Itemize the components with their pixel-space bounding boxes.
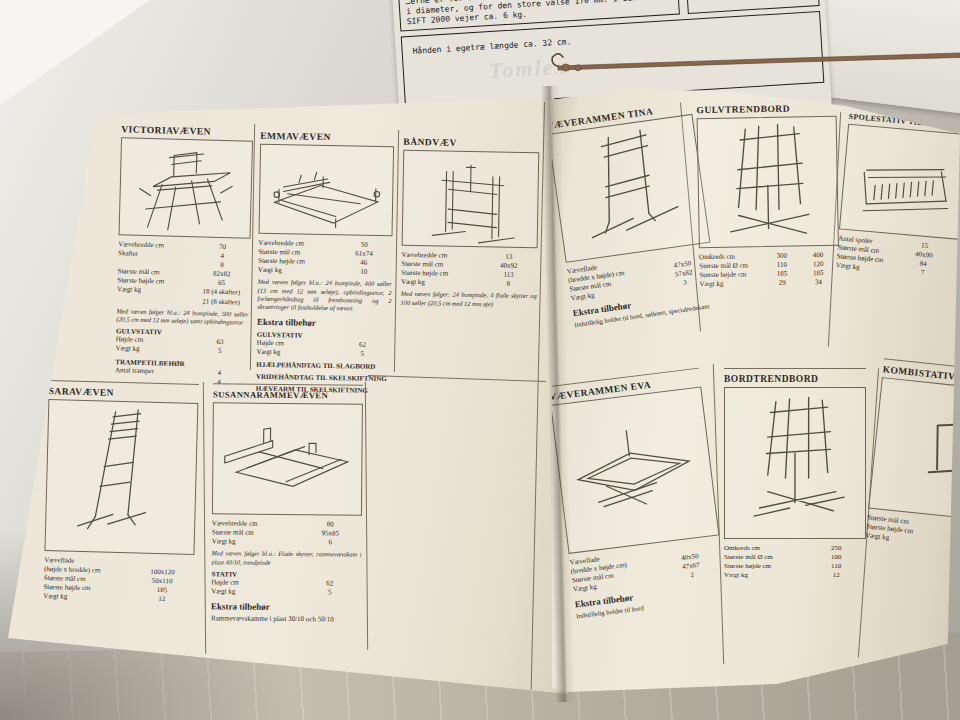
illustration-gulvtrendbord	[697, 116, 839, 248]
section-baandvaev: BÅNDVÆV Vævebredde cm13Største mål cm40x…	[401, 137, 540, 311]
catalog-left-page: VICTORIAVÆVEN Vævebredde cm70Skafter48St…	[6, 90, 572, 704]
section-title: GULVTRENDBORD	[696, 103, 836, 115]
illustration-band-loom	[402, 150, 540, 248]
ekstra-tilbehor-heading: Ekstra tilbehør	[211, 601, 361, 612]
section-gulvtrendbord: GULVTRENDBORD Omkreds cm300400Største må…	[696, 103, 839, 290]
illustration-sara-loom	[44, 399, 198, 555]
spec-value: 21 (8 skafter)	[193, 297, 249, 308]
section-saravaeven: SARAVÆVEN Væveflade(højde x bredde) cm10…	[43, 380, 199, 605]
spec-row: Vægt kg5	[256, 348, 390, 359]
divider-line	[203, 382, 206, 654]
spec-value: 12	[130, 595, 193, 606]
spec-label: Vægt kg	[401, 278, 480, 288]
spec-value: 29	[764, 279, 801, 289]
section-spolestativ: SPOLESTATIV TIL KRYDSNØGLER Antal spoler…	[835, 112, 960, 284]
divider-line	[368, 375, 546, 382]
section-susannarammevaeven: SUSANNARAMMEVÆVEN Vævebredde cm80Største…	[211, 383, 363, 627]
catalog-right-page: VÆVERAMMEN TINA Væveflade(bredde x højde…	[552, 88, 960, 696]
illustration-emma-loom	[259, 144, 395, 236]
included-items-note: Med væven følger bl.a.: 24 bompinde, 400…	[257, 278, 392, 314]
spec-value: 8	[480, 279, 537, 289]
spec-value: 5	[298, 588, 361, 598]
ekstra-tilbehor-heading: Ekstra tilbehør	[257, 317, 391, 329]
spec-label: Vægt kg	[43, 592, 130, 603]
section-title: BORDTRENDBORD	[724, 374, 866, 384]
spec-row: Største højde cm110	[724, 562, 866, 571]
spec-label: Største mål Ø cm	[724, 553, 806, 562]
spec-value	[934, 539, 960, 553]
ekstra-note: Rammevævskamme i plast 30/10 och 50/10	[211, 614, 361, 624]
spec-label: Omkreds cm	[724, 544, 806, 553]
spec-table: Højde cm62Vægt kg5	[256, 339, 390, 360]
section-victoriavaeven: VICTORIAVÆVEN Vævebredde cm70Skafter48St…	[115, 124, 254, 387]
section-vaeverammen-eva: VÆVERAMMEN EVA Væveflade(bredde x højde …	[548, 368, 728, 624]
included-items-note: Med væven følger bl.a.: 24 bompinde, 500…	[116, 307, 248, 327]
spec-value: 250	[806, 544, 866, 553]
illustration-bordtrendbord	[724, 387, 866, 539]
spec-label: Vægt kg	[256, 348, 334, 358]
spec-table: Antal spoler15Største mål cm40x90Største…	[835, 234, 948, 280]
spec-value: 6	[299, 538, 362, 548]
spec-table: Væveflade(højde x bredde) cm100x120Størs…	[43, 556, 194, 605]
spec-value: 34	[800, 278, 837, 288]
illustration-spolestativ	[839, 124, 960, 240]
spec-table: Højde cm62Vægt kg5	[211, 578, 361, 597]
spec-table: Omkreds cm250Største mål Ø cm100Største …	[724, 544, 866, 580]
spec-row: Vægt kg12	[724, 571, 866, 580]
spec-table: Omkreds cm300400Største mål Ø cm110120St…	[699, 251, 840, 290]
spec-value: 100	[806, 553, 866, 562]
illustration-kombistativ	[868, 377, 960, 521]
section-title: BÅNDVÆV	[403, 137, 539, 149]
accessory-line: VRIDEHÅNDTAG TIL SKELSKIFTNING	[256, 373, 390, 383]
section-title: VICTORIAVÆVEN	[121, 124, 253, 137]
spec-row: Vægt kg5	[211, 587, 361, 597]
spec-table: Største mål cmStørste højde cmVægt kg	[865, 513, 960, 553]
section-emmavaeven: EMMAVÆVEN Vævebredde cm50Største mål cm6…	[256, 131, 395, 399]
spec-row: Vægt kg6	[212, 538, 362, 548]
table-corner-highlight	[0, 0, 170, 120]
spec-label: Vægt kg	[212, 538, 299, 548]
spec-table: Vævebredde cm80Største mål cm95x85Vægt k…	[212, 519, 362, 548]
spec-value: 12	[806, 571, 866, 580]
illustration-susanna-loom	[212, 402, 363, 515]
divider-line	[365, 382, 368, 650]
illustration-victoria-loom	[119, 137, 254, 238]
spec-label: Vægt kg	[699, 279, 764, 289]
section-vaeverammen-tina: VÆVERAMMEN TINA Væveflade(bredde x højde…	[546, 101, 720, 332]
spec-label: Største højde cm	[724, 562, 806, 571]
spec-label: Vægt kg	[211, 587, 298, 597]
included-items-note: Med væven følger bl.a.: Flade skytter, r…	[211, 550, 361, 568]
spec-row: Omkreds cm250	[724, 544, 866, 553]
spec-row: Vægt kg2934	[699, 278, 839, 290]
spec-label: Vægt kg	[724, 571, 806, 580]
section-kombistativ: KOMBISTATIV Største mål cmStørste højde …	[865, 358, 960, 553]
spec-value: 10	[336, 267, 392, 277]
spec-value: 5	[192, 347, 248, 358]
spec-row: Vægt kg8	[401, 278, 537, 289]
spec-table: Vævebredde cm50Største mål cm61x74Størst…	[258, 239, 393, 278]
accessory-line: HJÆLPEHÅNDTAG TIL SLAGBORD	[256, 361, 390, 371]
spec-value: 110	[806, 562, 866, 571]
spec-label	[117, 295, 194, 306]
included-items-note: Med væven følger: 24 bompinde, 4 flade s…	[401, 290, 537, 309]
illustration-eva-frame	[550, 386, 719, 553]
spec-value: 5	[334, 349, 390, 359]
spec-row: Største mål Ø cm100	[724, 553, 866, 562]
divider-line	[394, 130, 399, 372]
section-title: SARAVÆVEN	[49, 386, 199, 400]
illustration-tina-frame	[548, 114, 711, 263]
section-title: SUSANNARAMMEVÆVEN	[213, 389, 363, 400]
section-title: EMMAVÆVEN	[260, 131, 394, 143]
spec-label: Vægt kg	[258, 266, 336, 276]
section-bordtrendbord: BORDTRENDBORD Omkreds cm250Største mål Ø…	[724, 368, 866, 580]
spec-table: Vævebredde cm70Skafter48Største mål cm82…	[117, 240, 251, 307]
spec-table: Vævebredde cm13Største mål cm40x92Størst…	[401, 251, 538, 290]
spec-label: Vægt kg	[115, 345, 192, 356]
photo-of-loom-catalog: Tomlex …erne er for den lille i diameter…	[0, 0, 960, 720]
spec-row: Vægt kg10	[258, 266, 392, 277]
spec-table: Højde cm63Vægt kg5	[115, 336, 247, 358]
